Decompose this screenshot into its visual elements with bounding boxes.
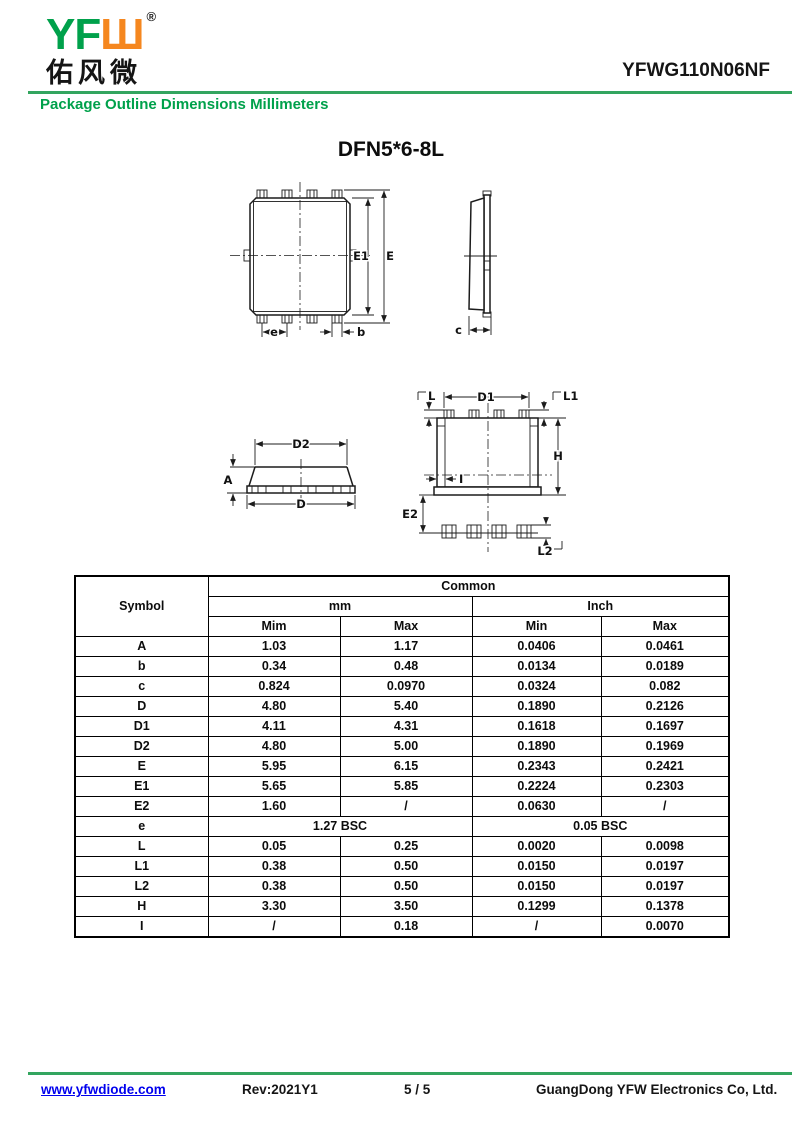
dim-label-d1: D1 xyxy=(477,390,495,404)
symbol-cell: c xyxy=(75,677,208,697)
symbol-cell: L2 xyxy=(75,877,208,897)
mm-max-cell: 0.50 xyxy=(340,877,472,897)
header-divider xyxy=(28,91,792,94)
dim-label-l2: L2 xyxy=(537,544,552,558)
inch-min-cell: 0.1299 xyxy=(472,897,601,917)
mm-max-cell: 3.50 xyxy=(340,897,472,917)
table-row: e1.27 BSC0.05 BSC xyxy=(75,817,729,837)
dim-label-b: b xyxy=(357,325,365,339)
symbol-cell: D xyxy=(75,697,208,717)
mm-min-cell: 0.05 xyxy=(208,837,340,857)
inch-max-cell: 0.082 xyxy=(601,677,729,697)
page-indicator: 5 / 5 xyxy=(404,1082,430,1097)
symbol-cell: A xyxy=(75,637,208,657)
inch-min-cell: 0.0630 xyxy=(472,797,601,817)
mm-min-cell: 5.95 xyxy=(208,757,340,777)
dim-label-e: e xyxy=(270,325,278,339)
dim-label-d2: D2 xyxy=(292,437,310,451)
common-header: Common xyxy=(208,576,729,597)
mm-min-cell: 4.80 xyxy=(208,697,340,717)
inch-max-cell: 0.1378 xyxy=(601,897,729,917)
symbol-cell: e xyxy=(75,817,208,837)
website-link[interactable]: www.yfwdiode.com xyxy=(41,1082,166,1097)
inch-min-cell: 0.0406 xyxy=(472,637,601,657)
mm-max-cell: 0.50 xyxy=(340,857,472,877)
mm-max-header: Max xyxy=(340,617,472,637)
inch-max-cell: / xyxy=(601,797,729,817)
table-row: E5.956.150.23430.2421 xyxy=(75,757,729,777)
table-row: L20.380.500.01500.0197 xyxy=(75,877,729,897)
mm-min-cell: 3.30 xyxy=(208,897,340,917)
inch-max-cell: 0.0197 xyxy=(601,857,729,877)
mm-min-cell: 1.03 xyxy=(208,637,340,657)
inch-min-cell: 0.2224 xyxy=(472,777,601,797)
logo-chinese-text: 佑风微 xyxy=(46,60,155,87)
symbol-cell: E2 xyxy=(75,797,208,817)
inch-max-cell: 0.0070 xyxy=(601,917,729,938)
mm-min-cell: 5.65 xyxy=(208,777,340,797)
dim-label-c: c xyxy=(455,323,462,337)
mm-min-cell: 0.38 xyxy=(208,857,340,877)
table-row: L0.050.250.00200.0098 xyxy=(75,837,729,857)
dimensions-table-body: A1.031.170.04060.0461b0.340.480.01340.01… xyxy=(75,637,729,938)
mm-max-cell: / xyxy=(340,797,472,817)
company-name: GuangDong YFW Electronics Co, Ltd. xyxy=(536,1082,777,1097)
inch-min-cell: 0.2343 xyxy=(472,757,601,777)
mm-min-cell: / xyxy=(208,917,340,938)
mm-max-cell: 6.15 xyxy=(340,757,472,777)
datasheet-page: YFШ® 佑风微 YFWG110N06NF Package Outline Di… xyxy=(0,0,800,1131)
logo-wordmark: YFШ® xyxy=(46,10,155,57)
symbol-cell: E1 xyxy=(75,777,208,797)
inch-max-cell: 0.0098 xyxy=(601,837,729,857)
logo-text-w: Ш xyxy=(100,10,143,59)
dim-label-a: A xyxy=(224,473,233,487)
inch-max-cell: 0.2421 xyxy=(601,757,729,777)
mm-max-cell: 5.85 xyxy=(340,777,472,797)
inch-max-cell: 0.2126 xyxy=(601,697,729,717)
mm-min-cell: 0.824 xyxy=(208,677,340,697)
symbol-cell: E xyxy=(75,757,208,777)
mm-max-cell: 1.17 xyxy=(340,637,472,657)
inch-max-cell: 0.0189 xyxy=(601,657,729,677)
symbol-cell: L xyxy=(75,837,208,857)
mm-max-cell: 0.18 xyxy=(340,917,472,938)
inch-min-cell: 0.0134 xyxy=(472,657,601,677)
inch-bsc-cell: 0.05 BSC xyxy=(472,817,729,837)
dim-label-h: H xyxy=(553,449,563,463)
inch-max-cell: 0.2303 xyxy=(601,777,729,797)
revision-label: Rev:2021Y1 xyxy=(242,1082,318,1097)
footer-divider xyxy=(28,1072,792,1075)
mm-header: mm xyxy=(208,597,472,617)
mm-min-cell: 1.60 xyxy=(208,797,340,817)
table-row: D24.805.000.18900.1969 xyxy=(75,737,729,757)
mm-max-cell: 4.31 xyxy=(340,717,472,737)
table-row: E15.655.850.22240.2303 xyxy=(75,777,729,797)
dimensions-table: Symbol Common mm Inch Mim Max Min Max A1… xyxy=(74,575,730,938)
inch-min-cell: 0.1890 xyxy=(472,737,601,757)
inch-min-cell: 0.0150 xyxy=(472,877,601,897)
yfw-logo: YFШ® 佑风微 xyxy=(46,10,155,87)
inch-min-cell: 0.0020 xyxy=(472,837,601,857)
mm-max-cell: 5.00 xyxy=(340,737,472,757)
inch-header: Inch xyxy=(472,597,729,617)
symbol-cell: I xyxy=(75,917,208,938)
dimensions-table-header: Symbol Common mm Inch Mim Max Min Max xyxy=(75,576,729,637)
inch-min-cell: 0.1890 xyxy=(472,697,601,717)
mm-max-cell: 0.0970 xyxy=(340,677,472,697)
inch-min-cell: 0.0324 xyxy=(472,677,601,697)
dim-label-d: D xyxy=(296,497,306,511)
mm-max-cell: 0.25 xyxy=(340,837,472,857)
table-row: I/0.18/0.0070 xyxy=(75,917,729,938)
table-header-row: Symbol Common xyxy=(75,576,729,597)
mm-min-cell: 0.38 xyxy=(208,877,340,897)
mm-min-header: Mim xyxy=(208,617,340,637)
mm-min-cell: 4.11 xyxy=(208,717,340,737)
mm-bsc-cell: 1.27 BSC xyxy=(208,817,472,837)
inch-max-header: Max xyxy=(601,617,729,637)
symbol-cell: D2 xyxy=(75,737,208,757)
side-view-drawing: c xyxy=(455,191,497,337)
dim-label-l: L xyxy=(428,389,436,403)
inch-min-cell: 0.0150 xyxy=(472,857,601,877)
dim-label-l1: L1 xyxy=(563,389,578,403)
inch-min-cell: 0.1618 xyxy=(472,717,601,737)
profile-view-drawing: D2 A D xyxy=(224,437,355,511)
package-title: DFN5*6-8L xyxy=(0,138,782,162)
dim-label-i: I xyxy=(459,472,463,486)
inch-max-cell: 0.0197 xyxy=(601,877,729,897)
dim-label-e1: E1 xyxy=(353,249,369,263)
part-number: YFWG110N06NF xyxy=(622,60,770,82)
table-row: E21.60/0.0630/ xyxy=(75,797,729,817)
section-subtitle: Package Outline Dimensions Millimeters xyxy=(40,96,328,113)
symbol-cell: D1 xyxy=(75,717,208,737)
inch-max-cell: 0.0461 xyxy=(601,637,729,657)
table-row: H3.303.500.12990.1378 xyxy=(75,897,729,917)
bottom-view-drawing: D1 L L1 H I E2 L2 xyxy=(402,389,578,558)
mm-min-cell: 4.80 xyxy=(208,737,340,757)
symbol-header: Symbol xyxy=(75,576,208,637)
inch-max-cell: 0.1969 xyxy=(601,737,729,757)
mm-max-cell: 5.40 xyxy=(340,697,472,717)
dim-label-e-cap: E xyxy=(386,249,394,263)
mm-max-cell: 0.48 xyxy=(340,657,472,677)
inch-min-cell: / xyxy=(472,917,601,938)
symbol-cell: L1 xyxy=(75,857,208,877)
dim-label-e2: E2 xyxy=(402,507,418,521)
mm-min-cell: 0.34 xyxy=(208,657,340,677)
table-row: L10.380.500.01500.0197 xyxy=(75,857,729,877)
table-row: A1.031.170.04060.0461 xyxy=(75,637,729,657)
symbol-cell: H xyxy=(75,897,208,917)
inch-min-header: Min xyxy=(472,617,601,637)
table-row: c0.8240.09700.03240.082 xyxy=(75,677,729,697)
registered-trademark-icon: ® xyxy=(146,9,155,24)
top-view-drawing: E1 E e b xyxy=(230,182,394,339)
table-row: D14.114.310.16180.1697 xyxy=(75,717,729,737)
logo-text-yf: YF xyxy=(46,10,100,59)
package-drawings: E1 E e b c xyxy=(0,160,800,560)
symbol-cell: b xyxy=(75,657,208,677)
table-row: D4.805.400.18900.2126 xyxy=(75,697,729,717)
table-row: b0.340.480.01340.0189 xyxy=(75,657,729,677)
inch-max-cell: 0.1697 xyxy=(601,717,729,737)
